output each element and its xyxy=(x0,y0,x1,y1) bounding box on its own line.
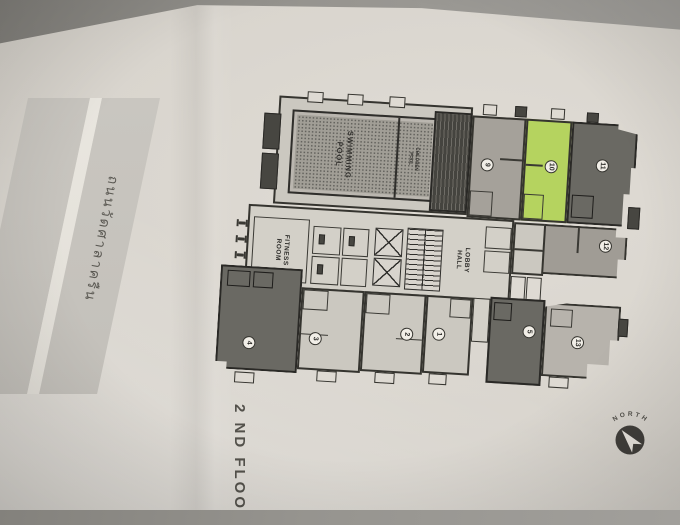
deck-planter-box xyxy=(389,96,406,108)
balcony-box xyxy=(374,372,395,384)
swimming-pool-label: SWIMMING POOL xyxy=(333,130,355,179)
unit-12: 12 xyxy=(541,224,628,279)
gym-equipment-icon xyxy=(239,221,246,224)
unit-9-bathroom xyxy=(469,190,493,217)
unit-10-highlighted: 10 xyxy=(520,119,572,224)
unit-10-partition xyxy=(526,164,543,167)
floor-title: 2 ND FLOOR xyxy=(231,404,248,525)
fitness-room-label: FITNESS ROOM xyxy=(272,234,291,266)
toilet-fixture xyxy=(319,234,326,244)
balcony-box xyxy=(483,104,498,116)
timber-deck-strip xyxy=(429,111,473,213)
unit-9-number: 9 xyxy=(480,158,494,172)
unit-9-partition xyxy=(500,158,523,161)
unit-12-partition xyxy=(576,228,579,253)
unit-13-number: 13 xyxy=(571,336,585,350)
service-room xyxy=(485,226,512,250)
elevator xyxy=(374,228,404,258)
unit-11-number: 11 xyxy=(595,159,609,173)
unit-2-bathroom xyxy=(365,293,391,314)
balcony-box xyxy=(551,108,566,120)
unit-3-bathroom xyxy=(302,289,328,311)
pool-divider-wall xyxy=(394,118,401,198)
planter-strip xyxy=(262,113,281,150)
lobby-hall-label: LOBBY HALL xyxy=(453,247,471,273)
ac-ledge xyxy=(586,112,599,123)
ac-ledge xyxy=(617,319,628,338)
ac-ledge xyxy=(627,207,640,230)
road xyxy=(0,98,156,394)
unit-3: 3 xyxy=(297,287,365,373)
staircase xyxy=(404,228,444,292)
unit-1-number: 1 xyxy=(432,327,446,341)
toilet-fixture xyxy=(317,264,324,274)
north-label: NORTH xyxy=(612,411,650,424)
unit-12-number: 12 xyxy=(599,239,613,253)
deck-planter-box xyxy=(307,91,324,103)
gym-equipment-icon xyxy=(237,253,244,256)
toilet-fixture xyxy=(348,236,355,246)
unit-4-bathroom xyxy=(226,270,250,287)
unit-2: 2 xyxy=(360,291,427,375)
unit-10-bathroom xyxy=(522,193,544,220)
unit-11-bathroom xyxy=(571,194,593,219)
wc-room xyxy=(342,228,370,258)
unit-5-number: 5 xyxy=(522,325,536,339)
planter-strip xyxy=(260,153,279,190)
elevator xyxy=(372,258,402,288)
unit-3-number: 3 xyxy=(308,332,322,346)
balcony-box xyxy=(234,371,255,383)
unit-1-bathroom xyxy=(450,298,472,318)
floor-plan: SWIMMING POOL CHILDREN POOL 9 10 11 xyxy=(204,86,652,412)
unit-4-number: 4 xyxy=(242,336,256,350)
balcony-box xyxy=(548,376,569,388)
unit-13: 13 xyxy=(541,302,621,381)
ac-ledge xyxy=(515,106,528,118)
unit-13-bathroom xyxy=(550,309,573,328)
unit-10-number: 10 xyxy=(544,160,558,174)
unit-5-bathroom xyxy=(493,302,512,321)
utility-rooms xyxy=(511,222,546,276)
balcony-box xyxy=(316,370,337,382)
unit-4: 4 xyxy=(215,264,303,373)
unit-5: 5 xyxy=(485,297,545,386)
unit-1: 1 xyxy=(422,295,474,376)
wc-room xyxy=(312,226,342,256)
deck-planter-box xyxy=(347,94,364,106)
balcony-box xyxy=(428,373,447,385)
children-pool-label: CHILDREN POOL xyxy=(407,147,420,171)
service-room xyxy=(483,250,510,274)
gym-equipment-icon xyxy=(238,237,245,240)
unit-9: 9 xyxy=(466,115,526,220)
partition xyxy=(515,248,543,251)
north-compass: NORTH xyxy=(592,400,676,484)
wc-room xyxy=(310,256,340,286)
paper-sheet: ถนนวัดศาลาครืน SWIMMING POOL CHILDREN PO… xyxy=(0,0,680,510)
unit-4-room xyxy=(253,271,274,288)
wc-room xyxy=(340,258,368,288)
swimming-pool: SWIMMING POOL CHILDREN POOL xyxy=(288,109,439,202)
